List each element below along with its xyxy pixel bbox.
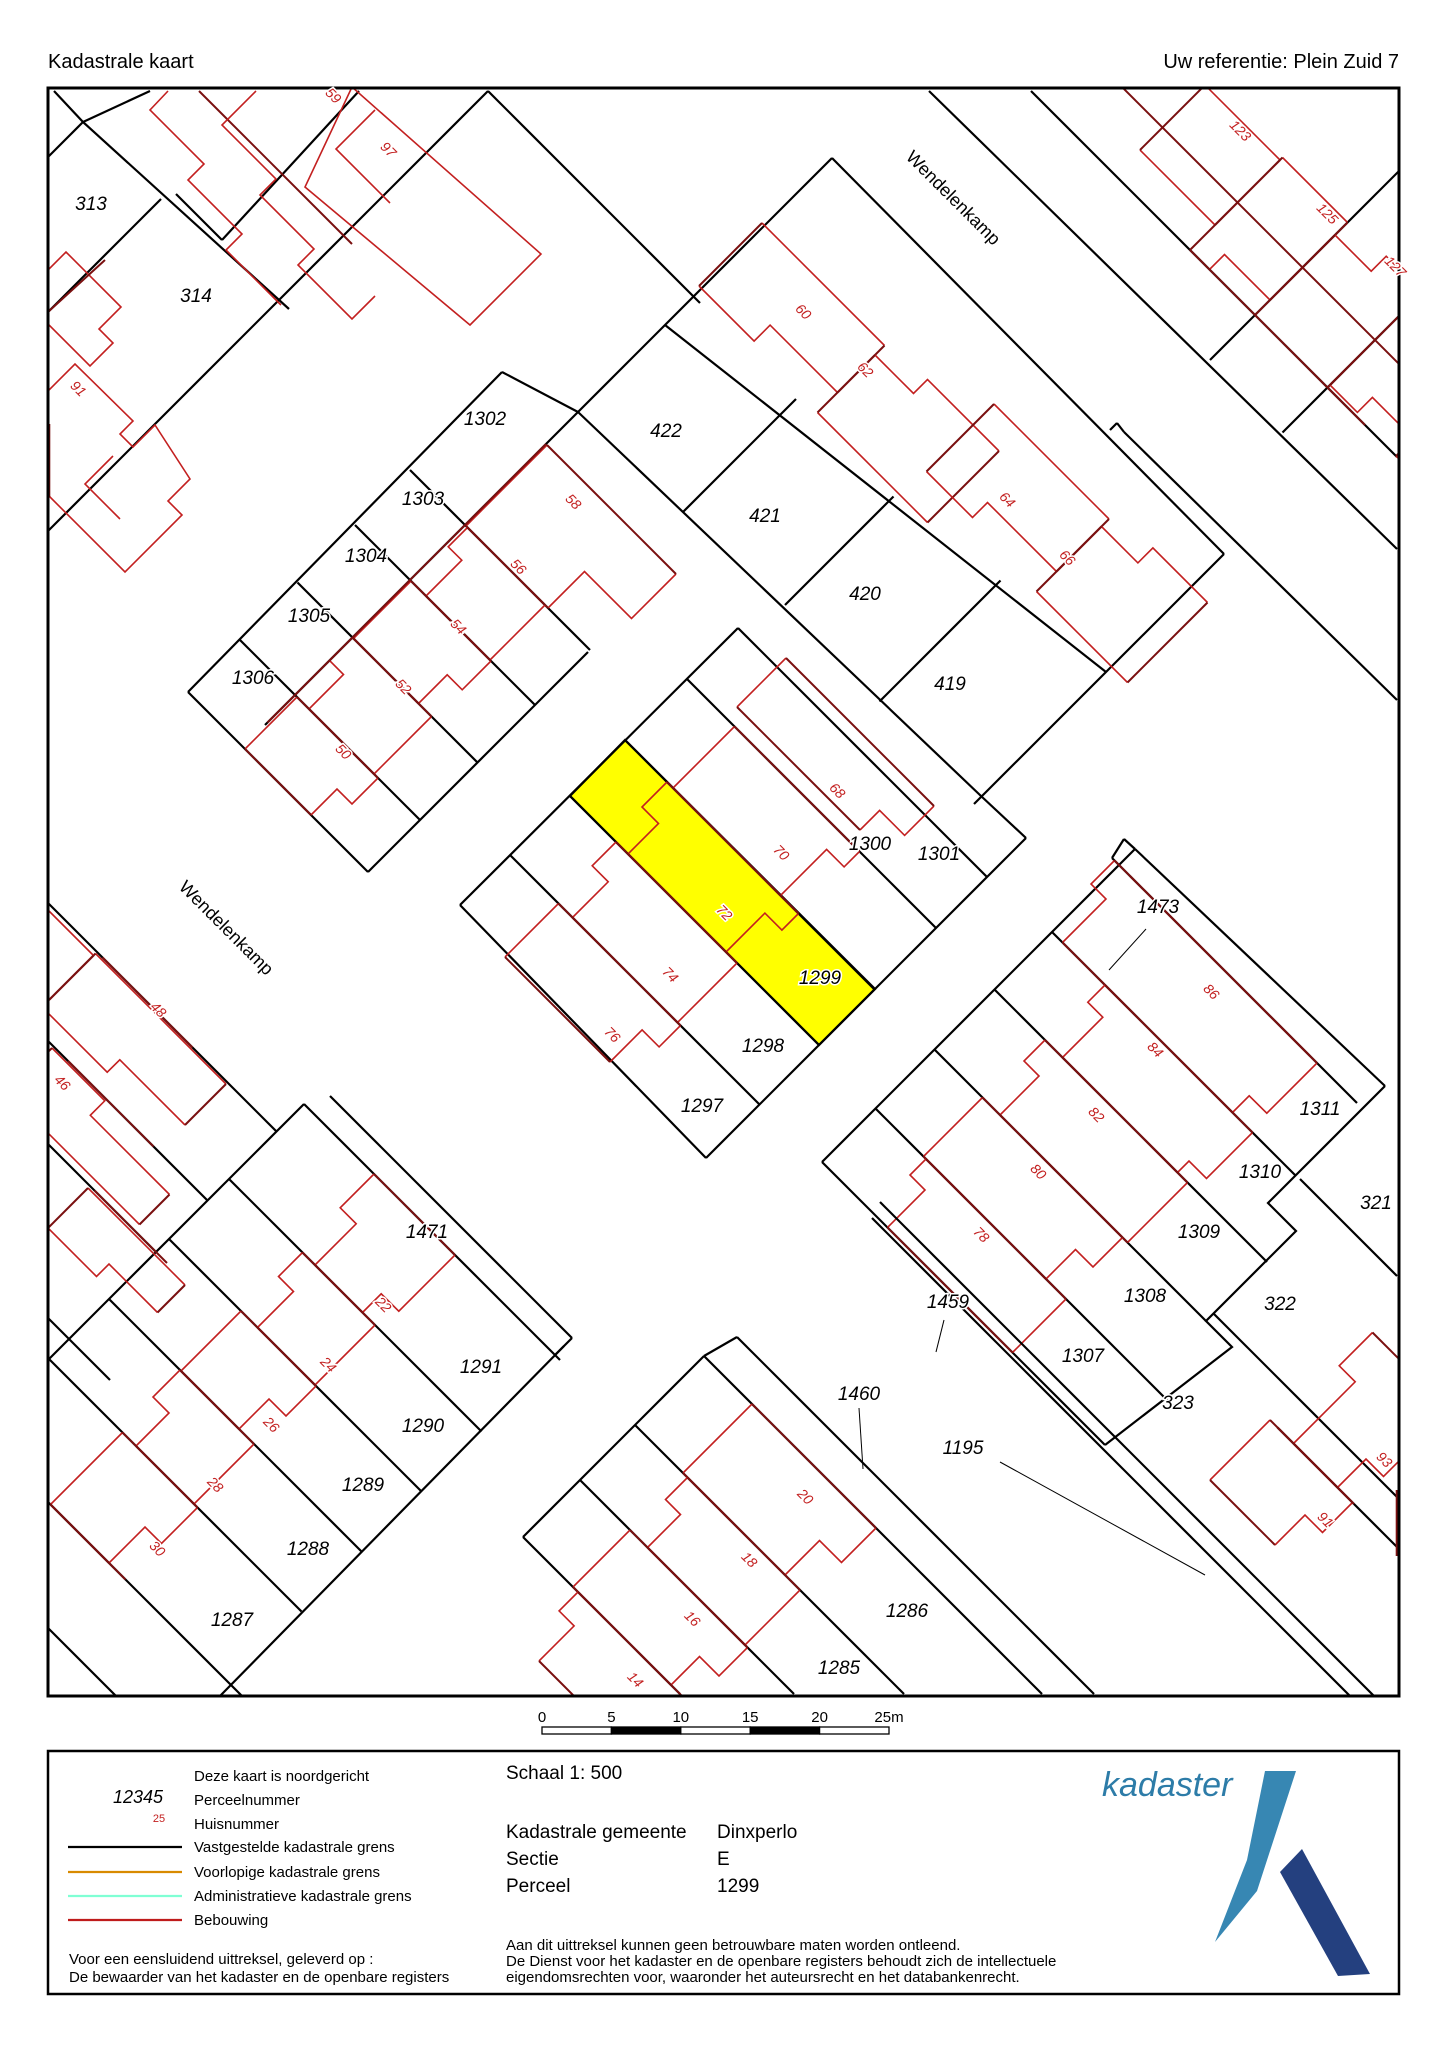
svg-text:Administratieve kadastrale gre: Administratieve kadastrale grens — [194, 1888, 412, 1905]
svg-text:E: E — [717, 1849, 730, 1870]
svg-text:1299: 1299 — [799, 968, 842, 989]
svg-text:1285: 1285 — [818, 1658, 861, 1679]
svg-text:Vastgestelde kadastrale grens: Vastgestelde kadastrale grens — [194, 1839, 395, 1856]
svg-text:422: 422 — [650, 421, 682, 442]
svg-text:1300: 1300 — [849, 834, 892, 855]
svg-text:1299: 1299 — [717, 1876, 759, 1897]
svg-text:1460: 1460 — [838, 1384, 881, 1405]
svg-text:5: 5 — [607, 1709, 615, 1726]
svg-text:313: 313 — [75, 194, 107, 215]
svg-text:Deze kaart is noordgericht: Deze kaart is noordgericht — [194, 1768, 370, 1785]
svg-text:1291: 1291 — [460, 1357, 502, 1378]
svg-text:1459: 1459 — [927, 1292, 970, 1313]
svg-text:1303: 1303 — [402, 489, 445, 510]
svg-text:Perceelnummer: Perceelnummer — [194, 1792, 300, 1809]
svg-text:1195: 1195 — [943, 1438, 984, 1459]
svg-text:Voorlopige kadastrale grens: Voorlopige kadastrale grens — [194, 1864, 380, 1881]
svg-text:419: 419 — [934, 674, 966, 695]
svg-text:421: 421 — [749, 506, 781, 527]
svg-text:1290: 1290 — [402, 1416, 445, 1437]
svg-text:1286: 1286 — [886, 1601, 929, 1622]
svg-text:Kadastrale kaart: Kadastrale kaart — [48, 51, 194, 73]
svg-text:1307: 1307 — [1062, 1346, 1106, 1367]
svg-text:De Dienst voor het kadaster en: De Dienst voor het kadaster en de openba… — [506, 1953, 1056, 1970]
svg-text:Dinxperlo: Dinxperlo — [717, 1822, 797, 1843]
svg-text:1305: 1305 — [288, 606, 331, 627]
svg-text:12345: 12345 — [113, 1787, 164, 1807]
svg-text:De bewaarder van het kadaster: De bewaarder van het kadaster en de open… — [69, 1969, 449, 1986]
svg-text:1289: 1289 — [342, 1475, 385, 1496]
svg-text:323: 323 — [1162, 1393, 1194, 1414]
svg-text:1301: 1301 — [918, 844, 960, 865]
svg-text:1308: 1308 — [1124, 1286, 1167, 1307]
svg-text:Aan dit uittreksel kunnen geen: Aan dit uittreksel kunnen geen betrouwba… — [506, 1937, 960, 1954]
svg-text:10: 10 — [672, 1709, 689, 1726]
svg-text:Huisnummer: Huisnummer — [194, 1816, 279, 1833]
svg-text:15: 15 — [742, 1709, 759, 1726]
svg-text:1310: 1310 — [1239, 1162, 1282, 1183]
svg-text:1306: 1306 — [232, 668, 275, 689]
svg-text:1297: 1297 — [681, 1096, 725, 1117]
svg-text:Schaal 1: 500: Schaal 1: 500 — [506, 1763, 622, 1784]
svg-text:1288: 1288 — [287, 1539, 330, 1560]
svg-text:25: 25 — [153, 1813, 165, 1825]
svg-text:kadaster: kadaster — [1102, 1766, 1234, 1804]
svg-text:Kadastrale gemeente: Kadastrale gemeente — [506, 1822, 687, 1843]
svg-text:1304: 1304 — [345, 546, 387, 567]
svg-text:1302: 1302 — [464, 409, 507, 430]
svg-text:eigendomsrechten voor, waarond: eigendomsrechten voor, waaronder het aut… — [506, 1969, 1020, 1986]
svg-text:1311: 1311 — [1300, 1099, 1341, 1120]
svg-text:25m: 25m — [874, 1709, 903, 1726]
svg-text:1473: 1473 — [1137, 897, 1180, 918]
svg-text:Perceel: Perceel — [506, 1876, 570, 1897]
svg-text:20: 20 — [811, 1709, 828, 1726]
svg-text:321: 321 — [1360, 1193, 1392, 1214]
svg-text:1287: 1287 — [211, 1610, 255, 1631]
svg-text:420: 420 — [849, 584, 881, 605]
svg-text:Voor een eensluidend uittrekse: Voor een eensluidend uittreksel, gelever… — [69, 1951, 373, 1968]
svg-text:Sectie: Sectie — [506, 1849, 559, 1870]
svg-text:Uw referentie: Plein Zuid 7: Uw referentie: Plein Zuid 7 — [1163, 51, 1399, 73]
svg-text:0: 0 — [538, 1709, 546, 1726]
svg-text:322: 322 — [1264, 1294, 1296, 1315]
svg-text:1298: 1298 — [742, 1036, 785, 1057]
svg-text:1309: 1309 — [1178, 1222, 1221, 1243]
svg-text:1471: 1471 — [406, 1222, 448, 1243]
svg-text:Bebouwing: Bebouwing — [194, 1912, 268, 1929]
svg-text:314: 314 — [180, 286, 212, 307]
